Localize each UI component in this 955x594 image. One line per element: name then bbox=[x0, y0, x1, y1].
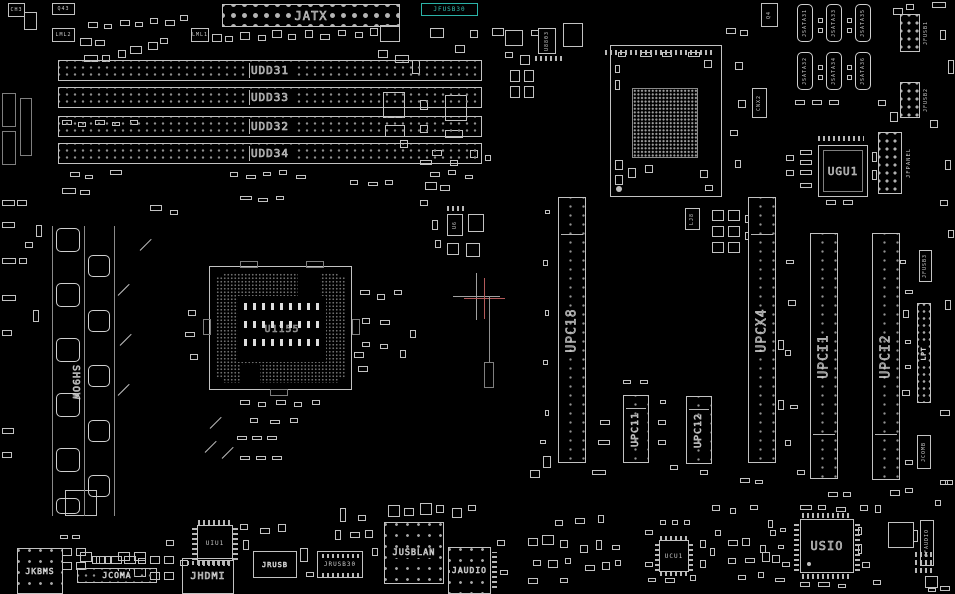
smd-part bbox=[76, 548, 86, 556]
bga-pad-grid bbox=[632, 88, 698, 158]
smd-part bbox=[847, 28, 852, 33]
smd-part bbox=[843, 200, 853, 205]
smd-part bbox=[672, 520, 678, 525]
smd-part bbox=[940, 410, 950, 416]
smd-part bbox=[670, 465, 678, 470]
smd-part bbox=[95, 40, 105, 46]
smd-part bbox=[530, 470, 540, 478]
smd-part bbox=[838, 584, 846, 588]
smd-part bbox=[785, 440, 791, 446]
smd-part bbox=[878, 100, 886, 106]
chip-ucu1-group[interactable]: UCU1 bbox=[655, 536, 693, 576]
dimm-slot[interactable]: UDD33 bbox=[58, 87, 482, 108]
bus-line bbox=[114, 226, 115, 516]
smd-part bbox=[447, 243, 459, 255]
smd-part bbox=[872, 152, 877, 162]
smd-part bbox=[365, 530, 373, 538]
smd-part bbox=[2, 295, 16, 301]
smd-part bbox=[860, 505, 868, 511]
smd-part bbox=[740, 478, 750, 483]
socket-label: U1155 bbox=[264, 324, 299, 335]
smd-part bbox=[358, 366, 368, 372]
silkscreen-slash bbox=[118, 284, 130, 296]
smd-part bbox=[598, 440, 610, 445]
dimm-slot[interactable]: UDD34 bbox=[58, 143, 482, 164]
smd-part bbox=[745, 558, 755, 563]
inductor bbox=[88, 475, 110, 497]
component-q4[interactable]: Q4 bbox=[761, 3, 778, 27]
smd-part bbox=[800, 183, 812, 188]
inductor bbox=[88, 420, 110, 442]
cpu-socket[interactable]: U1155 bbox=[209, 266, 352, 390]
smd-part bbox=[350, 180, 358, 185]
smd-part bbox=[818, 18, 823, 23]
smd-part bbox=[890, 112, 898, 122]
smd-part bbox=[230, 172, 238, 177]
smd-part bbox=[505, 30, 523, 46]
component-lml2[interactable]: LML2 bbox=[52, 28, 75, 42]
smd-part bbox=[150, 205, 162, 211]
smd-part bbox=[797, 470, 805, 475]
chip-ugu1[interactable]: UGU1 bbox=[818, 145, 868, 197]
smd-part bbox=[505, 52, 513, 58]
smd-part bbox=[715, 530, 721, 536]
crosshair-accent-v bbox=[484, 278, 485, 319]
smd-part bbox=[466, 243, 480, 257]
rear-usb3-connector[interactable]: JRUSB30 bbox=[317, 551, 363, 578]
smd-part bbox=[800, 160, 812, 165]
smd-part bbox=[740, 30, 748, 36]
silkscreen-slash bbox=[210, 417, 222, 429]
smd-part bbox=[905, 290, 913, 294]
smd-part bbox=[818, 75, 823, 80]
smd-part bbox=[800, 582, 810, 587]
smd-part bbox=[250, 418, 258, 423]
pad-row bbox=[818, 136, 864, 141]
smd-part bbox=[436, 505, 444, 513]
component-lj8[interactable]: LJ8 bbox=[685, 208, 700, 230]
smd-part bbox=[240, 196, 252, 200]
smd-part bbox=[818, 505, 826, 510]
smd-part bbox=[712, 242, 724, 253]
smd-part bbox=[726, 28, 736, 34]
smd-part bbox=[256, 456, 266, 460]
smd-part bbox=[548, 560, 558, 568]
inductor bbox=[56, 283, 80, 307]
smd-part bbox=[455, 45, 465, 53]
smd-part bbox=[272, 30, 282, 38]
smd-part bbox=[258, 198, 268, 202]
sata-port[interactable]: JSATA36 bbox=[855, 52, 871, 90]
smd-part bbox=[758, 572, 764, 578]
smd-part bbox=[768, 520, 773, 528]
smd-part bbox=[272, 456, 282, 460]
smd-part bbox=[665, 578, 675, 583]
smd-part bbox=[660, 400, 666, 404]
smd-part bbox=[795, 100, 805, 105]
smd-part bbox=[290, 418, 298, 423]
bus-line bbox=[84, 226, 85, 516]
smd-part bbox=[385, 180, 393, 185]
smd-part bbox=[710, 548, 715, 556]
smd-part bbox=[728, 242, 740, 253]
smd-part bbox=[465, 175, 473, 179]
smd-part bbox=[246, 175, 256, 179]
smd-part bbox=[135, 22, 143, 27]
smd-part bbox=[700, 560, 706, 568]
smd-part bbox=[786, 155, 794, 161]
smd-part bbox=[350, 532, 360, 538]
smd-part bbox=[164, 572, 174, 580]
smd-part bbox=[778, 340, 784, 350]
smd-part bbox=[728, 226, 740, 237]
smd-part bbox=[2, 452, 12, 458]
pcie-x1-slot[interactable]: UPC11 bbox=[623, 395, 649, 463]
smd-part bbox=[728, 540, 738, 546]
smd-part bbox=[778, 545, 784, 549]
smd-part bbox=[2, 131, 16, 165]
smd-part bbox=[545, 310, 549, 316]
front-panel-header-label: JFPANEL bbox=[903, 132, 915, 194]
usb-front-header-2[interactable] bbox=[900, 82, 920, 118]
smd-part bbox=[818, 65, 823, 70]
smd-part bbox=[540, 440, 546, 444]
smd-part bbox=[425, 182, 437, 190]
smd-part bbox=[358, 515, 366, 521]
smd-part bbox=[410, 330, 416, 338]
smd-part bbox=[36, 225, 42, 237]
smd-part bbox=[420, 200, 428, 206]
smd-part bbox=[380, 320, 390, 325]
smd-part bbox=[120, 20, 130, 26]
smd-part bbox=[134, 552, 146, 561]
smd-part bbox=[684, 520, 690, 525]
smd-part bbox=[580, 545, 588, 553]
smd-part bbox=[645, 530, 653, 535]
smd-part bbox=[360, 290, 370, 295]
smd-part bbox=[772, 555, 780, 563]
smd-part bbox=[372, 548, 378, 556]
smd-part bbox=[340, 508, 346, 522]
smd-part bbox=[354, 352, 364, 358]
smd-part bbox=[92, 556, 100, 564]
smd-part bbox=[940, 480, 948, 485]
smd-part bbox=[847, 75, 852, 80]
smd-part bbox=[165, 20, 175, 26]
vrm-area-label: SH9OW bbox=[68, 336, 84, 428]
smd-part bbox=[900, 260, 906, 264]
smd-part bbox=[468, 214, 484, 232]
silkscreen-slash bbox=[222, 447, 234, 459]
smd-part bbox=[542, 535, 554, 545]
smd-part bbox=[240, 400, 250, 405]
usb-front-header-3[interactable]: JFUSB3 bbox=[919, 250, 932, 282]
smd-part bbox=[164, 556, 174, 564]
smd-part bbox=[528, 538, 538, 546]
smd-part bbox=[430, 172, 440, 177]
smd-part bbox=[225, 36, 233, 42]
smd-part bbox=[440, 185, 450, 191]
smd-part bbox=[377, 294, 385, 300]
pad-row bbox=[535, 56, 565, 61]
smd-part bbox=[660, 520, 666, 525]
smd-part bbox=[150, 556, 160, 564]
component-u6[interactable]: U6 bbox=[447, 214, 463, 236]
smd-part bbox=[826, 200, 836, 205]
smd-part bbox=[762, 552, 770, 562]
smd-part bbox=[543, 360, 548, 365]
pad-row bbox=[447, 206, 467, 211]
smd-part bbox=[712, 226, 724, 237]
usb3-front-header-selected[interactable]: JFUSB30 bbox=[421, 3, 478, 16]
smd-part bbox=[592, 470, 606, 475]
smd-part bbox=[497, 540, 505, 546]
smd-part bbox=[563, 23, 583, 47]
smd-part bbox=[305, 30, 313, 38]
smd-part bbox=[118, 552, 130, 561]
component-q43[interactable]: Q43 bbox=[52, 3, 75, 15]
smd-part bbox=[648, 578, 656, 582]
smd-part bbox=[520, 55, 530, 65]
smd-part bbox=[905, 460, 913, 465]
smd-part bbox=[932, 2, 946, 8]
smd-part bbox=[338, 30, 346, 36]
smd-part bbox=[380, 344, 388, 349]
sata-port[interactable]: JSATA34 bbox=[826, 52, 842, 90]
smd-part bbox=[533, 560, 541, 566]
sata-port[interactable]: JSATA32 bbox=[797, 52, 813, 90]
smd-part bbox=[948, 230, 954, 238]
smd-part bbox=[545, 210, 550, 214]
smd-part bbox=[585, 565, 595, 571]
front-panel-header[interactable] bbox=[878, 132, 902, 194]
smd-part bbox=[818, 582, 830, 587]
pci-slot[interactable]: UPCI1 bbox=[810, 233, 838, 479]
smd-part bbox=[468, 505, 476, 511]
smd-part bbox=[560, 578, 568, 583]
smd-part bbox=[905, 488, 913, 493]
smd-part bbox=[104, 24, 112, 29]
inductor bbox=[88, 255, 110, 277]
smd-part bbox=[70, 172, 80, 177]
component-u8803[interactable]: U8803 bbox=[538, 28, 556, 54]
smd-part bbox=[240, 32, 250, 40]
crosshair-v bbox=[476, 273, 477, 320]
smd-part bbox=[645, 562, 653, 567]
sata-port[interactable]: JSATA35 bbox=[855, 4, 871, 42]
motherboard-boardview: CH3 Q43 LML2 LML1 JATX JFUSB30 UDD31 UDD… bbox=[0, 0, 955, 594]
com-header-b[interactable]: JCOMB bbox=[917, 435, 931, 469]
smd-part bbox=[335, 530, 341, 540]
smd-part bbox=[872, 170, 877, 180]
smd-part bbox=[362, 342, 370, 347]
smd-part bbox=[212, 34, 222, 42]
smd-part bbox=[730, 508, 736, 514]
smd-part bbox=[862, 562, 870, 568]
silkscreen-slash bbox=[120, 334, 132, 346]
inductor bbox=[88, 365, 110, 387]
chipset-bga[interactable] bbox=[610, 45, 722, 197]
smd-part bbox=[602, 562, 610, 570]
smd-part bbox=[2, 200, 15, 206]
smd-part bbox=[300, 548, 308, 562]
smd-part bbox=[510, 86, 520, 98]
smd-part bbox=[940, 30, 946, 40]
smd-part bbox=[940, 200, 948, 206]
smd-part bbox=[24, 12, 37, 30]
inductor bbox=[56, 498, 80, 514]
smd-part bbox=[180, 15, 188, 21]
silkscreen-slash bbox=[118, 384, 130, 396]
socket-cavity: U1155 bbox=[238, 296, 326, 362]
smd-part bbox=[555, 520, 563, 526]
smd-part bbox=[785, 350, 791, 356]
smd-part bbox=[80, 38, 92, 46]
smd-part bbox=[60, 535, 68, 539]
smd-part bbox=[435, 240, 441, 248]
smd-part bbox=[500, 570, 508, 575]
smd-part bbox=[875, 505, 881, 513]
smd-part bbox=[260, 528, 270, 534]
smd-part bbox=[510, 70, 520, 82]
smd-part bbox=[755, 480, 763, 484]
usb-front-header-2-label: JFUSB2 bbox=[920, 82, 932, 118]
ps2-kb-mouse-connector[interactable]: JKBMS bbox=[17, 548, 63, 594]
smd-part bbox=[786, 170, 794, 176]
smd-part bbox=[370, 28, 378, 36]
smd-part bbox=[812, 100, 822, 105]
smd-part bbox=[730, 130, 738, 136]
lpt-header[interactable]: LPT bbox=[917, 303, 931, 403]
smd-part bbox=[62, 548, 72, 556]
smd-part bbox=[294, 402, 302, 407]
smd-part bbox=[560, 540, 568, 548]
front-audio-header[interactable]: JFAUDIO bbox=[920, 520, 934, 566]
chip-uiu1: UIU1 bbox=[197, 525, 233, 561]
smd-part bbox=[906, 4, 914, 10]
smd-part bbox=[658, 440, 666, 445]
pci-slot[interactable]: UPCI2 bbox=[872, 233, 900, 480]
component-lml1[interactable]: LML1 bbox=[191, 28, 209, 42]
smd-part bbox=[240, 524, 248, 530]
rear-usb-connector[interactable]: JRUSB bbox=[253, 551, 297, 578]
com-port-a[interactable]: JCOMA bbox=[77, 568, 157, 583]
smd-part bbox=[400, 350, 406, 358]
smd-part bbox=[750, 505, 758, 510]
pcie-x4-slot[interactable]: UPCX4 bbox=[748, 197, 776, 463]
smd-part bbox=[945, 300, 951, 310]
smd-part bbox=[847, 18, 852, 23]
smd-part bbox=[263, 172, 271, 176]
sata-port[interactable]: JSATA31 bbox=[797, 4, 813, 42]
dimm-slot[interactable]: UDD32 bbox=[58, 116, 482, 137]
smd-part bbox=[394, 290, 402, 295]
smd-part bbox=[20, 98, 32, 156]
smd-part bbox=[388, 505, 400, 517]
dimm-slot[interactable]: UDD31 bbox=[58, 60, 482, 81]
pcie-x1-slot[interactable]: UPC12 bbox=[686, 396, 712, 464]
smd-part bbox=[279, 170, 287, 175]
smd-part bbox=[110, 170, 122, 175]
smd-part bbox=[85, 175, 93, 179]
smd-part bbox=[452, 508, 462, 518]
smd-part bbox=[836, 507, 846, 512]
sata-port[interactable]: JSATA33 bbox=[826, 4, 842, 42]
pcie-x16-slot[interactable]: UPC18 bbox=[558, 197, 586, 463]
usb-lan-stack[interactable]: JUSBLAN bbox=[384, 522, 444, 584]
smd-part bbox=[543, 456, 551, 468]
smd-part bbox=[738, 100, 746, 108]
smd-part bbox=[543, 260, 548, 266]
smd-part bbox=[150, 18, 158, 24]
inductor bbox=[56, 448, 80, 472]
smd-part bbox=[786, 260, 794, 264]
smd-part bbox=[270, 420, 280, 424]
hdmi-connector[interactable]: JHDMI bbox=[182, 558, 234, 594]
probe-connector bbox=[484, 362, 494, 388]
smd-part bbox=[528, 578, 538, 584]
silkscreen-slash bbox=[140, 239, 152, 251]
smd-part bbox=[575, 518, 585, 524]
smd-part bbox=[598, 515, 604, 523]
smd-part bbox=[742, 538, 750, 546]
silkscreen-slash bbox=[205, 441, 217, 453]
component-cnx2[interactable]: CNX2 bbox=[752, 88, 767, 118]
smd-part bbox=[658, 420, 666, 425]
smd-part bbox=[288, 34, 296, 40]
smd-part bbox=[700, 540, 706, 548]
smd-part bbox=[404, 508, 414, 516]
smd-part bbox=[788, 300, 796, 306]
smd-part bbox=[780, 528, 786, 532]
smd-part bbox=[118, 50, 126, 58]
smd-part bbox=[378, 50, 388, 58]
smd-part bbox=[902, 390, 910, 396]
smd-part bbox=[320, 34, 330, 40]
smd-part bbox=[362, 318, 370, 324]
pad-row bbox=[492, 552, 497, 588]
smd-part bbox=[240, 456, 250, 460]
inductor bbox=[56, 228, 80, 252]
smd-part bbox=[258, 35, 266, 41]
audio-jack-stack[interactable]: JAUDIO bbox=[448, 547, 491, 594]
smd-part bbox=[828, 492, 838, 497]
smd-part bbox=[470, 30, 478, 38]
inductor bbox=[88, 310, 110, 332]
atx-power-connector[interactable]: JATX bbox=[222, 4, 400, 27]
smd-part bbox=[700, 470, 708, 475]
smd-part bbox=[596, 540, 602, 550]
smd-part bbox=[640, 380, 648, 384]
component-ch3[interactable]: CH3 bbox=[8, 3, 25, 17]
smd-part bbox=[2, 330, 12, 336]
smd-part bbox=[925, 576, 938, 588]
smd-part bbox=[166, 540, 174, 546]
usb-front-header-1[interactable] bbox=[900, 14, 920, 52]
smd-part bbox=[430, 28, 444, 38]
smd-part bbox=[623, 380, 631, 384]
superio-chip: USIO bbox=[800, 519, 854, 573]
chip-ucu1: UCU1 bbox=[659, 540, 689, 572]
smd-part bbox=[735, 62, 743, 70]
smd-part bbox=[829, 100, 839, 105]
smd-part bbox=[524, 86, 534, 98]
smd-part bbox=[903, 310, 909, 318]
smd-part bbox=[800, 505, 812, 510]
smd-part bbox=[355, 32, 363, 38]
superio-chip-group[interactable]: USIO bbox=[794, 513, 860, 579]
smd-part bbox=[615, 560, 621, 566]
